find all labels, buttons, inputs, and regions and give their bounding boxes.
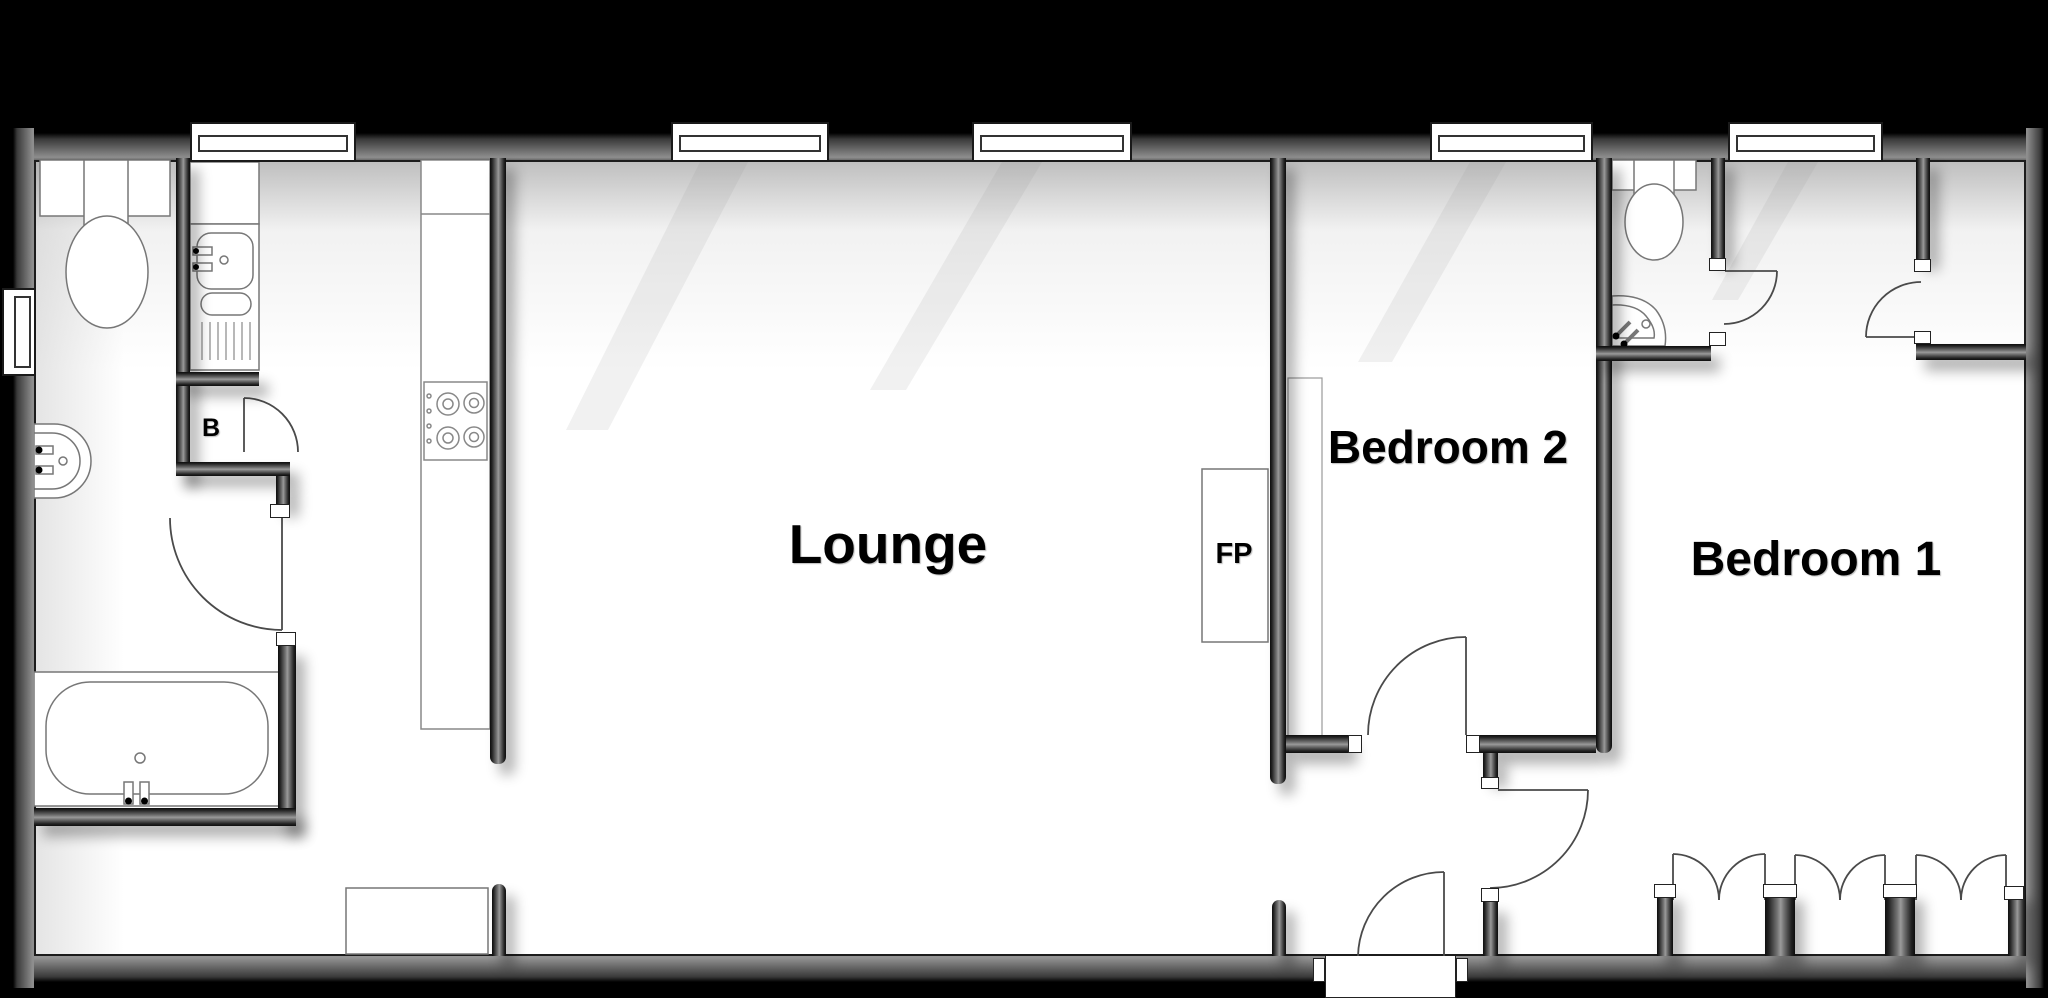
window-icon (671, 122, 829, 162)
wall-hall-door-stub-upper (1483, 753, 1498, 777)
door-jamb (1654, 884, 1676, 898)
room-label-lounge: Lounge (688, 512, 1088, 576)
door-jamb (1709, 332, 1726, 346)
window-icon (2, 288, 36, 376)
wall-bathroom-door-stub (276, 476, 290, 506)
wall-lounge-east (1270, 158, 1286, 784)
door-jamb (1481, 888, 1499, 902)
wall-bedroom2-south-right (1480, 735, 1596, 753)
wall-store-south (1916, 344, 2026, 360)
door-jamb (1456, 958, 1468, 982)
wall-under-sink (176, 372, 259, 386)
wall-hall-door-stub-lower (1483, 902, 1498, 956)
door-jamb (1883, 884, 1917, 898)
door-jamb (1313, 958, 1325, 982)
window-icon (1728, 122, 1883, 162)
door-jamb (1348, 735, 1362, 753)
wall-store-west (1916, 158, 1930, 259)
wall-hall-west-stub (1272, 900, 1286, 956)
wall-ensuite-south (1596, 346, 1711, 361)
wall-wardrobe-pillar-1 (1657, 890, 1673, 956)
outer-wall-right (2026, 128, 2048, 988)
wall-boiler-south (176, 462, 290, 476)
wall-bathroom-south (34, 808, 296, 826)
entrance-threshold (1325, 956, 1456, 998)
wall-ensuite-east (1711, 158, 1725, 258)
wall-bedroom2-south-left (1286, 735, 1348, 753)
outer-wall-left (8, 128, 34, 988)
door-jamb (1709, 258, 1726, 271)
wall-bathroom-east (176, 158, 190, 386)
floor-plan: Lounge Bedroom 2 Bedroom 1 FP B (0, 0, 2048, 998)
wall-kitchen-stub (492, 884, 506, 956)
door-jamb (270, 504, 290, 518)
room-label-bedroom1: Bedroom 1 (1616, 532, 2016, 587)
door-jamb (1763, 884, 1797, 898)
door-jamb (1914, 259, 1931, 272)
label-fireplace: FP (1202, 538, 1266, 571)
label-boiler-cupboard: B (190, 414, 232, 443)
door-jamb (1914, 331, 1931, 344)
door-jamb (276, 632, 296, 646)
window-icon (1430, 122, 1593, 162)
wall-wardrobe-pillar-2 (1765, 890, 1795, 956)
door-jamb (1481, 777, 1499, 789)
door-jamb (2004, 886, 2024, 900)
room-label-bedroom2: Bedroom 2 (1292, 420, 1604, 474)
wall-bath-east (278, 646, 296, 826)
window-icon (972, 122, 1132, 162)
door-jamb (1466, 735, 1480, 753)
wall-wardrobe-pillar-3 (1885, 890, 1915, 956)
outer-wall-bottom (10, 956, 2040, 988)
wall-kitchen-lounge (490, 158, 506, 764)
window-icon (190, 122, 356, 162)
